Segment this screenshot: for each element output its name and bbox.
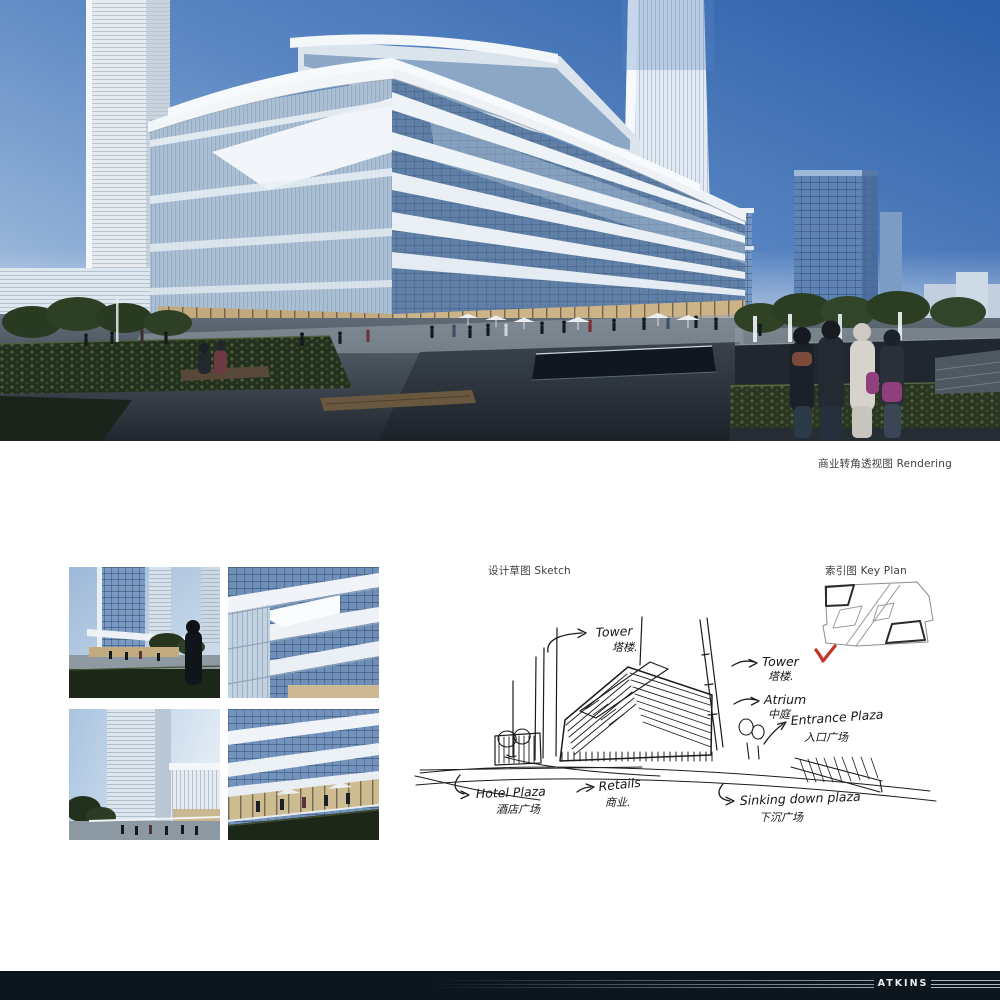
- annotation-hotel-zh: 酒店广场: [496, 803, 541, 816]
- annotation-tower1-zh: 塔楼.: [612, 641, 638, 654]
- annotation-sinking-zh: 下沉广场: [759, 811, 804, 824]
- sketch-section-label: 设计草图 Sketch: [488, 563, 571, 578]
- annotation-retails-zh: 商业.: [605, 796, 631, 809]
- annotation-entrance-zh: 入口广场: [804, 731, 849, 744]
- annotation-tower1-en: Tower: [595, 623, 633, 640]
- thumbnail-tower-base: [69, 709, 220, 840]
- footer-lines-right: [931, 980, 1000, 988]
- annotation-hotel-en: Hotel Plaza: [476, 784, 546, 801]
- annotation-atrium-en: Atrium: [763, 692, 806, 707]
- annotation-tower2-en: Tower: [762, 654, 800, 669]
- annotation-tower2-zh: 塔楼.: [768, 670, 794, 683]
- presentation-board: 商业转角透视图 Rendering: [0, 0, 1000, 1000]
- main-rendering-image: [0, 0, 1000, 441]
- footer-bar: ATKINS: [0, 971, 1000, 1000]
- red-check-mark: [816, 646, 835, 661]
- keyplan-parcels: [823, 582, 933, 646]
- annotation-sinking-en: Sinking down plaza: [740, 789, 861, 808]
- annotation-entrance-en: Entrance Plaza: [790, 707, 884, 728]
- rendering-caption: 商业转角透视图 Rendering: [700, 456, 952, 471]
- thumbnail-podium-closeup: [228, 709, 379, 840]
- thumbnail-facade-corner: [228, 567, 379, 698]
- key-plan-diagram: [812, 580, 942, 665]
- thumbnail-street-view: [69, 567, 220, 698]
- atkins-logo: ATKINS: [870, 978, 936, 989]
- footer-lines-left: [430, 980, 874, 988]
- annotation-retails-en: Retails: [598, 775, 642, 794]
- annotation-atrium-zh: 中庭: [768, 708, 792, 721]
- keyplan-section-label: 索引图 Key Plan: [825, 563, 907, 578]
